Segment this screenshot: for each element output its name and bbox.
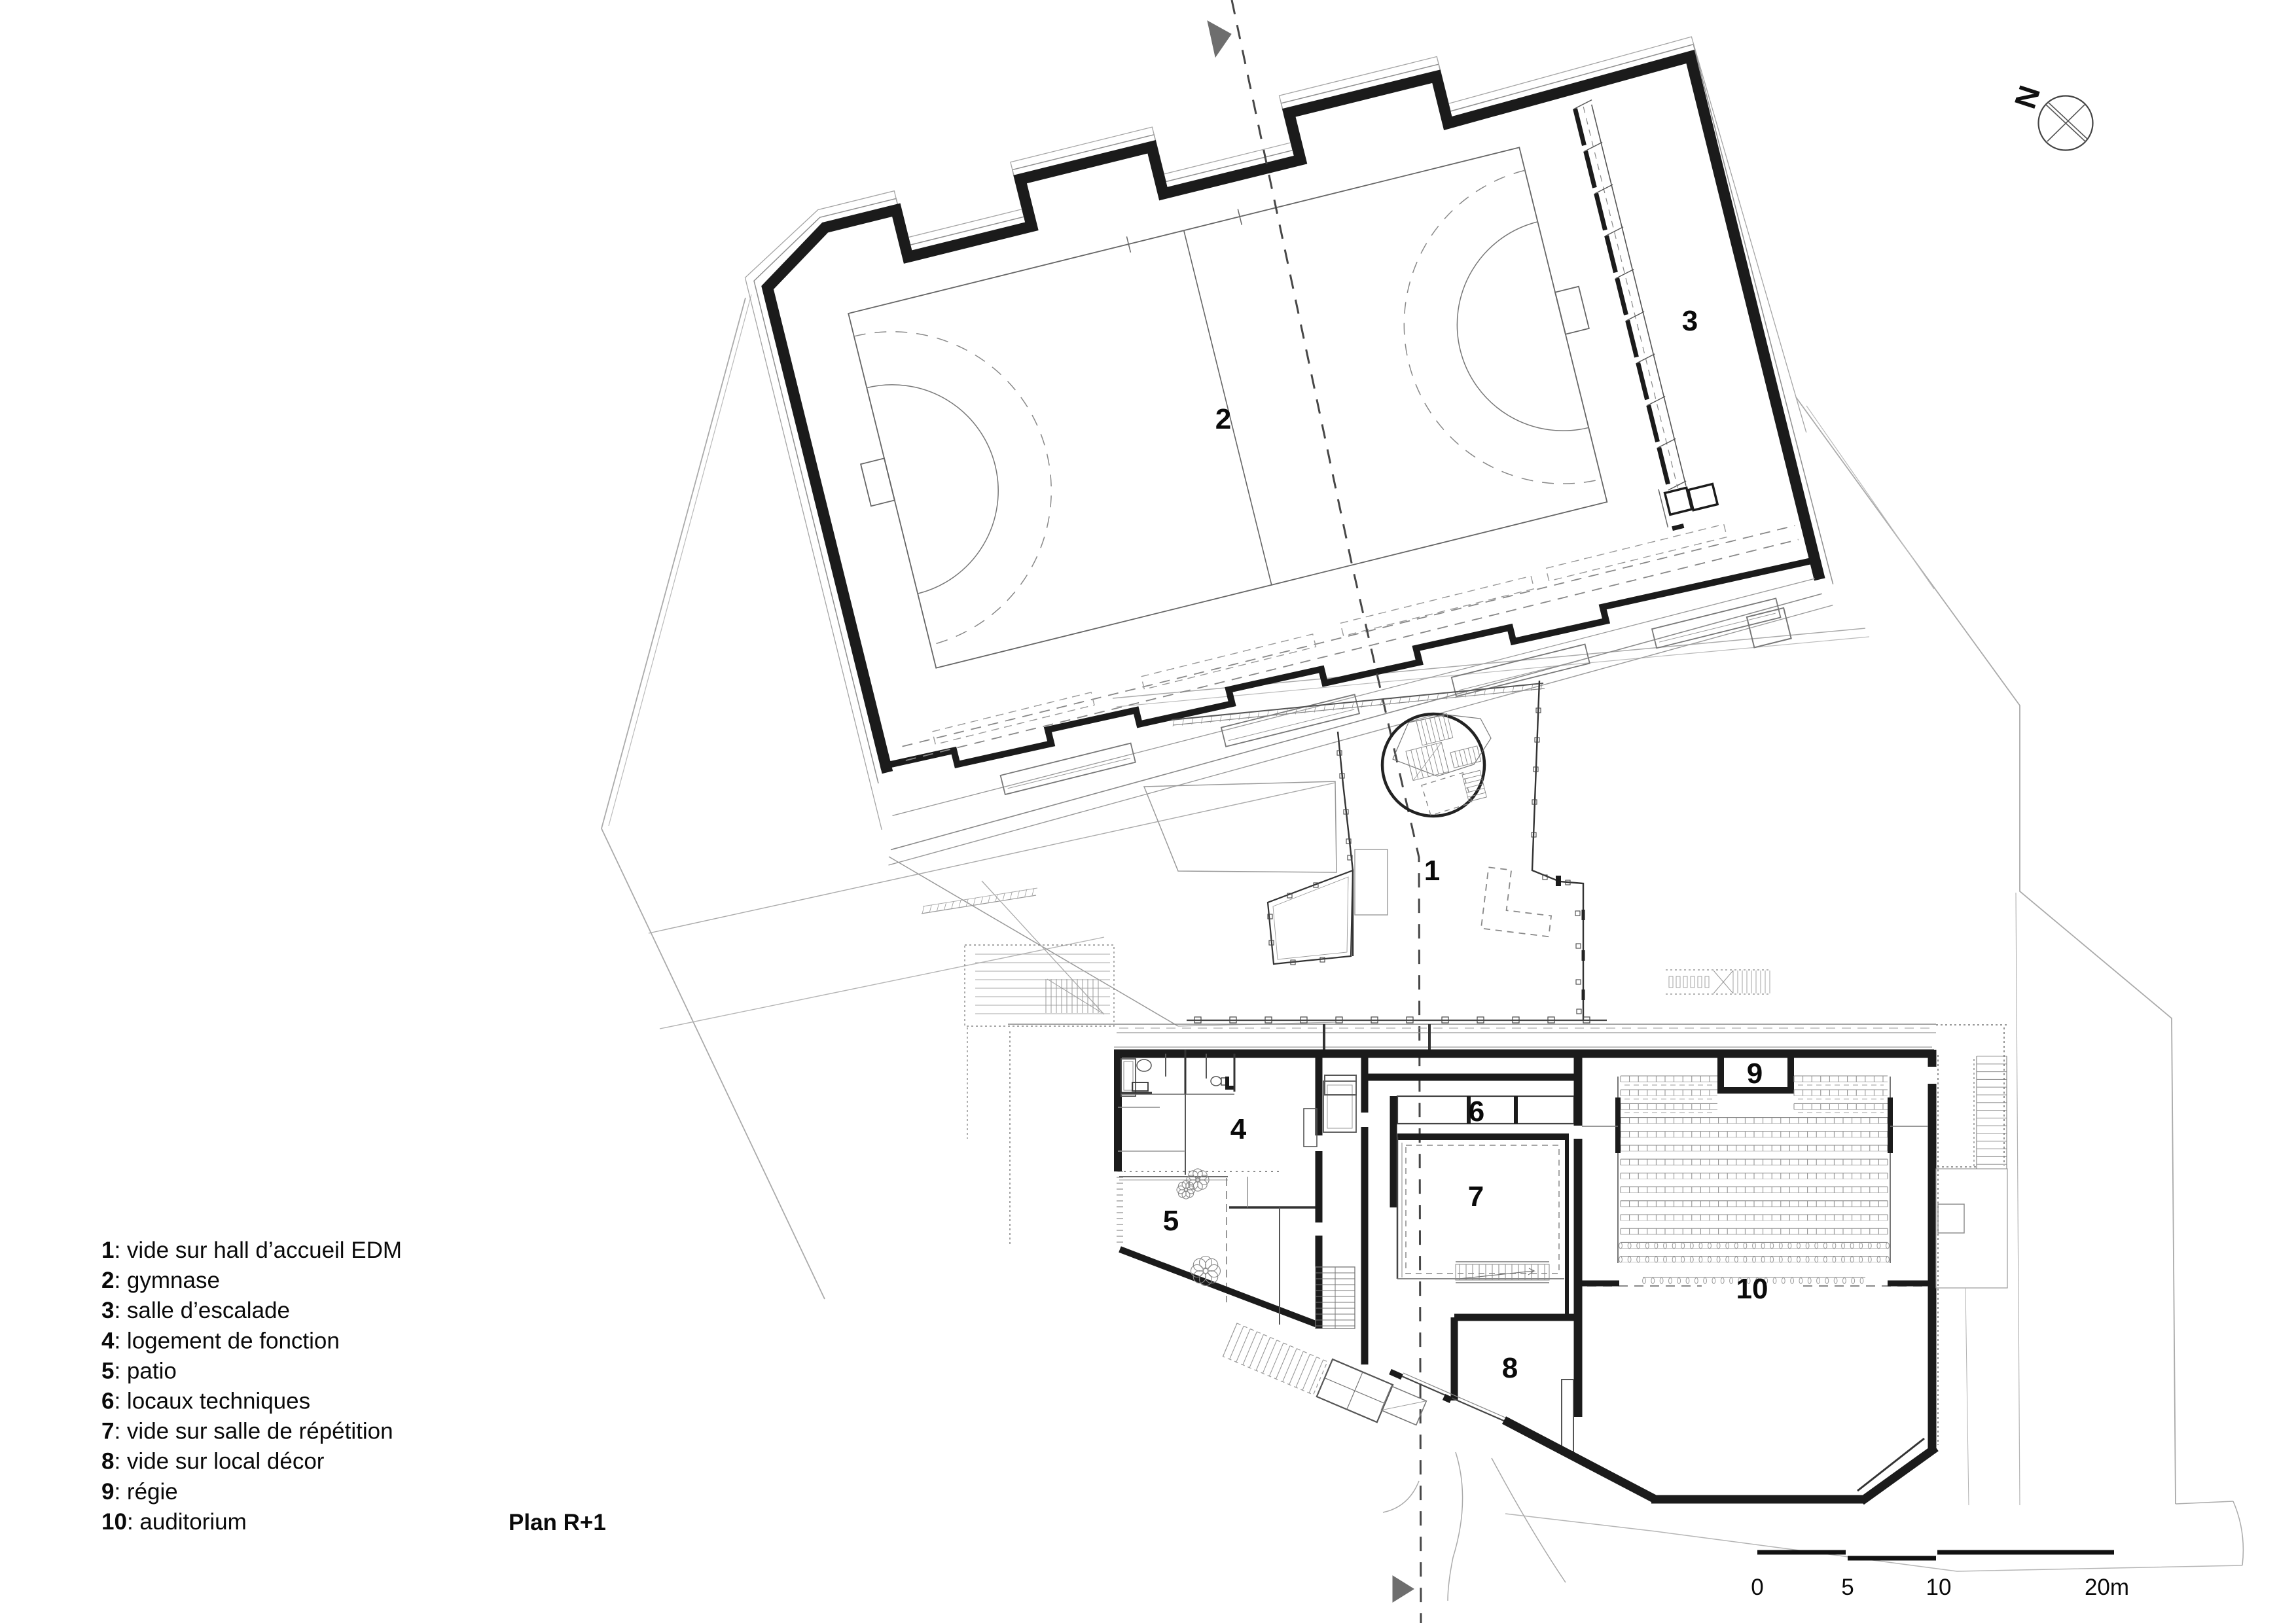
svg-text:5: patio: 5: patio [101, 1358, 177, 1383]
svg-text:8: vide sur local décor: 8: vide sur local décor [101, 1449, 325, 1474]
svg-text:1: vide sur hall d’accueil EDM: 1: vide sur hall d’accueil EDM [101, 1238, 402, 1263]
svg-text:9: 9 [1747, 1058, 1763, 1090]
svg-text:2: gymnase: 2: gymnase [101, 1268, 220, 1293]
svg-text:Plan R+1: Plan R+1 [509, 1510, 606, 1535]
svg-text:3: 3 [1682, 305, 1698, 337]
svg-text:9: régie: 9: régie [101, 1479, 178, 1505]
svg-text:10: 10 [1926, 1575, 1952, 1600]
svg-text:3: salle d’escalade: 3: salle d’escalade [101, 1298, 290, 1323]
svg-text:1: 1 [1424, 855, 1440, 887]
svg-text:10: auditorium: 10: auditorium [101, 1509, 247, 1535]
svg-text:0: 0 [1751, 1575, 1763, 1600]
svg-text:4: logement de fonction: 4: logement de fonction [101, 1328, 340, 1353]
svg-text:10: 10 [1736, 1273, 1768, 1305]
svg-text:7: 7 [1468, 1181, 1484, 1213]
svg-text:5: 5 [1841, 1575, 1854, 1600]
svg-text:5: 5 [1163, 1205, 1179, 1237]
svg-text:4: 4 [1230, 1113, 1247, 1145]
svg-text:6: locaux techniques: 6: locaux techniques [101, 1389, 310, 1414]
svg-text:20m: 20m [2085, 1575, 2129, 1600]
svg-text:6: 6 [1469, 1096, 1484, 1128]
svg-text:2: 2 [1215, 403, 1231, 435]
svg-text:7: vide sur salle de répétitio: 7: vide sur salle de répétition [101, 1419, 393, 1444]
svg-text:8: 8 [1502, 1352, 1518, 1384]
